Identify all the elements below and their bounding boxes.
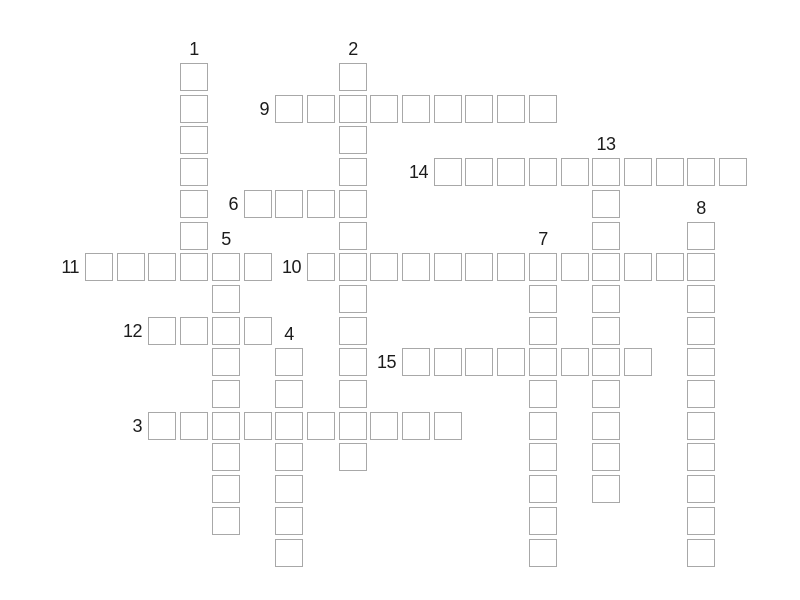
crossword-cell[interactable] xyxy=(624,253,652,281)
crossword-cell[interactable] xyxy=(180,95,208,123)
crossword-cell[interactable] xyxy=(592,348,620,376)
crossword-cell[interactable] xyxy=(212,317,240,345)
crossword-cell[interactable] xyxy=(687,348,715,376)
crossword-cell[interactable] xyxy=(180,158,208,186)
crossword-cell[interactable] xyxy=(624,348,652,376)
crossword-cell[interactable] xyxy=(592,412,620,440)
crossword-cell[interactable] xyxy=(275,348,303,376)
crossword-cell[interactable] xyxy=(117,253,145,281)
crossword-cell[interactable] xyxy=(529,95,557,123)
crossword-cell[interactable] xyxy=(307,412,335,440)
crossword-cell[interactable] xyxy=(561,253,589,281)
crossword-cell[interactable] xyxy=(212,380,240,408)
crossword-cell[interactable] xyxy=(434,348,462,376)
crossword-cell[interactable] xyxy=(275,95,303,123)
crossword-cell[interactable] xyxy=(592,443,620,471)
crossword-cell[interactable] xyxy=(339,443,367,471)
crossword-cell[interactable] xyxy=(592,317,620,345)
crossword-cell[interactable] xyxy=(687,507,715,535)
crossword-cell[interactable] xyxy=(687,317,715,345)
crossword-cell[interactable] xyxy=(180,253,208,281)
crossword-cell[interactable] xyxy=(465,348,493,376)
crossword-cell[interactable] xyxy=(592,380,620,408)
crossword-cell[interactable] xyxy=(402,412,430,440)
crossword-cell[interactable] xyxy=(465,95,493,123)
crossword-cell[interactable] xyxy=(687,380,715,408)
clue-number-13: 13 xyxy=(576,136,636,153)
crossword-cell[interactable] xyxy=(497,253,525,281)
crossword-cell[interactable] xyxy=(687,253,715,281)
crossword-cell[interactable] xyxy=(465,158,493,186)
crossword-cell[interactable] xyxy=(687,222,715,250)
crossword-cell[interactable] xyxy=(148,412,176,440)
crossword-cell[interactable] xyxy=(244,190,272,218)
crossword-cell[interactable] xyxy=(656,158,684,186)
crossword-cell[interactable] xyxy=(434,412,462,440)
crossword-cell[interactable] xyxy=(212,348,240,376)
crossword-cell[interactable] xyxy=(656,253,684,281)
crossword-cell[interactable] xyxy=(402,95,430,123)
crossword-cell[interactable] xyxy=(307,95,335,123)
crossword-cell[interactable] xyxy=(275,380,303,408)
crossword-cell[interactable] xyxy=(687,158,715,186)
clue-number-9: 9 xyxy=(211,101,269,118)
crossword-cell[interactable] xyxy=(402,253,430,281)
crossword-cell[interactable] xyxy=(339,412,367,440)
clue-number-2: 2 xyxy=(323,41,383,58)
crossword-cell[interactable] xyxy=(339,95,367,123)
crossword-cell[interactable] xyxy=(339,380,367,408)
crossword-cell[interactable] xyxy=(180,126,208,154)
crossword-cell[interactable] xyxy=(592,253,620,281)
crossword-cell[interactable] xyxy=(434,253,462,281)
clue-number-1: 1 xyxy=(164,41,224,58)
crossword-cell[interactable] xyxy=(434,95,462,123)
crossword-cell[interactable] xyxy=(275,443,303,471)
crossword-cell[interactable] xyxy=(529,158,557,186)
crossword-cell[interactable] xyxy=(148,253,176,281)
clue-number-14: 14 xyxy=(370,164,428,181)
crossword-cell[interactable] xyxy=(529,412,557,440)
crossword-cell[interactable] xyxy=(465,253,493,281)
crossword-cell[interactable] xyxy=(212,507,240,535)
crossword-cell[interactable] xyxy=(592,475,620,503)
crossword-cell[interactable] xyxy=(339,285,367,313)
crossword-cell[interactable] xyxy=(339,317,367,345)
crossword-cell[interactable] xyxy=(687,285,715,313)
crossword-cell[interactable] xyxy=(592,222,620,250)
crossword-cell[interactable] xyxy=(529,475,557,503)
crossword-cell[interactable] xyxy=(307,253,335,281)
crossword-cell[interactable] xyxy=(244,317,272,345)
crossword-cell[interactable] xyxy=(212,443,240,471)
clue-number-5: 5 xyxy=(196,231,256,248)
crossword-cell[interactable] xyxy=(180,412,208,440)
crossword-cell[interactable] xyxy=(687,412,715,440)
crossword-cell[interactable] xyxy=(275,190,303,218)
crossword-cell[interactable] xyxy=(592,190,620,218)
crossword-page: 123456789101112131415 xyxy=(0,0,800,600)
crossword-cell[interactable] xyxy=(212,475,240,503)
crossword-cell[interactable] xyxy=(339,126,367,154)
crossword-cell[interactable] xyxy=(687,475,715,503)
crossword-cell[interactable] xyxy=(180,63,208,91)
crossword-cell[interactable] xyxy=(529,507,557,535)
crossword-cell[interactable] xyxy=(434,158,462,186)
crossword-cell[interactable] xyxy=(687,443,715,471)
crossword-cell[interactable] xyxy=(529,380,557,408)
crossword-cell[interactable] xyxy=(339,253,367,281)
crossword-cell[interactable] xyxy=(529,317,557,345)
crossword-cell[interactable] xyxy=(339,63,367,91)
crossword-cell[interactable] xyxy=(561,158,589,186)
crossword-cell[interactable] xyxy=(244,253,272,281)
crossword-cell[interactable] xyxy=(275,475,303,503)
crossword-cell[interactable] xyxy=(497,95,525,123)
crossword-cell[interactable] xyxy=(212,253,240,281)
crossword-cell[interactable] xyxy=(529,348,557,376)
crossword-cell[interactable] xyxy=(339,158,367,186)
crossword-cell[interactable] xyxy=(497,348,525,376)
clue-number-11: 11 xyxy=(21,259,79,276)
crossword-cell[interactable] xyxy=(275,539,303,567)
crossword-cell[interactable] xyxy=(212,412,240,440)
crossword-cell[interactable] xyxy=(624,158,652,186)
crossword-grid: 123456789101112131415 xyxy=(0,0,800,600)
crossword-cell[interactable] xyxy=(370,95,398,123)
crossword-cell[interactable] xyxy=(529,285,557,313)
crossword-cell[interactable] xyxy=(370,253,398,281)
clue-number-12: 12 xyxy=(84,323,142,340)
crossword-cell[interactable] xyxy=(180,317,208,345)
crossword-cell[interactable] xyxy=(244,412,272,440)
crossword-cell[interactable] xyxy=(497,158,525,186)
clue-number-6: 6 xyxy=(180,196,238,213)
crossword-cell[interactable] xyxy=(529,253,557,281)
crossword-cell[interactable] xyxy=(85,253,113,281)
crossword-cell[interactable] xyxy=(719,158,747,186)
crossword-cell[interactable] xyxy=(529,443,557,471)
crossword-cell[interactable] xyxy=(275,507,303,535)
crossword-cell[interactable] xyxy=(561,348,589,376)
crossword-cell[interactable] xyxy=(339,190,367,218)
clue-number-15: 15 xyxy=(338,354,396,371)
clue-number-3: 3 xyxy=(84,418,142,435)
crossword-cell[interactable] xyxy=(529,539,557,567)
crossword-cell[interactable] xyxy=(148,317,176,345)
crossword-cell[interactable] xyxy=(687,539,715,567)
crossword-cell[interactable] xyxy=(212,285,240,313)
crossword-cell[interactable] xyxy=(307,190,335,218)
crossword-cell[interactable] xyxy=(339,222,367,250)
crossword-cell[interactable] xyxy=(592,158,620,186)
crossword-cell[interactable] xyxy=(402,348,430,376)
crossword-cell[interactable] xyxy=(592,285,620,313)
crossword-cell[interactable] xyxy=(275,412,303,440)
clue-number-7: 7 xyxy=(513,231,573,248)
crossword-cell[interactable] xyxy=(370,412,398,440)
clue-number-8: 8 xyxy=(671,200,731,217)
